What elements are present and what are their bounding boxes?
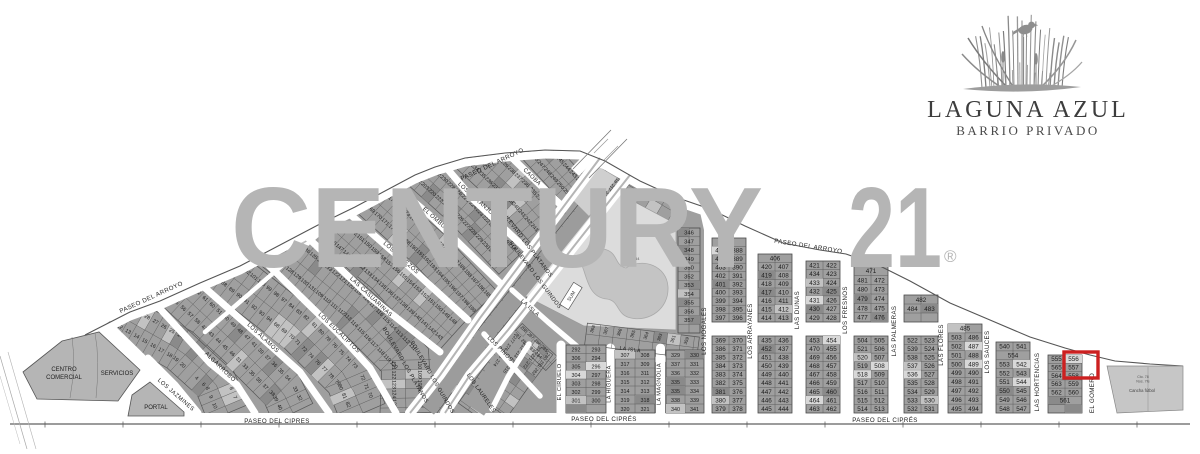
svg-text:385: 385: [715, 355, 726, 362]
svg-text:436: 436: [778, 337, 789, 344]
svg-text:331: 331: [690, 362, 699, 368]
svg-text:LA HIGUERA: LA HIGUERA: [607, 365, 613, 403]
svg-text:522: 522: [907, 337, 918, 344]
svg-text:320: 320: [621, 407, 630, 413]
svg-text:514: 514: [857, 406, 868, 413]
svg-text:300: 300: [592, 398, 601, 404]
svg-text:513: 513: [874, 406, 885, 413]
svg-text:378: 378: [732, 406, 743, 413]
svg-text:299: 299: [592, 390, 601, 396]
svg-text:527: 527: [924, 372, 935, 379]
svg-text:548: 548: [999, 406, 1010, 413]
svg-text:CENTRO: CENTRO: [51, 367, 77, 373]
svg-text:555: 555: [1051, 356, 1062, 363]
svg-text:321: 321: [641, 407, 650, 413]
svg-text:LOS NOGALES: LOS NOGALES: [701, 307, 708, 355]
svg-text:441: 441: [778, 380, 789, 387]
svg-text:376: 376: [732, 389, 743, 396]
svg-text:491: 491: [968, 379, 979, 386]
svg-text:317: 317: [621, 362, 630, 368]
svg-text:465: 465: [809, 389, 820, 396]
svg-text:464: 464: [809, 397, 820, 404]
svg-text:535: 535: [907, 380, 918, 387]
svg-text:449: 449: [761, 372, 772, 379]
svg-text:435: 435: [761, 337, 772, 344]
svg-text:394: 394: [732, 298, 743, 305]
svg-text:369: 369: [715, 337, 726, 344]
svg-text:338: 338: [671, 398, 680, 404]
svg-text:PASEO DEL CIPRÉS: PASEO DEL CIPRÉS: [852, 417, 918, 424]
svg-text:424: 424: [826, 280, 837, 287]
svg-text:21: 21: [848, 165, 942, 292]
svg-text:318: 318: [641, 398, 650, 404]
svg-text:381: 381: [715, 389, 726, 396]
svg-text:538: 538: [907, 355, 918, 362]
svg-text:468: 468: [809, 363, 820, 370]
svg-text:524: 524: [924, 346, 935, 353]
svg-text:508: 508: [874, 363, 885, 370]
svg-text:543: 543: [1016, 370, 1027, 377]
svg-text:COMERCIAL: COMERCIAL: [46, 375, 82, 381]
svg-text:416: 416: [761, 298, 772, 305]
svg-text:312: 312: [641, 380, 650, 386]
svg-text:549: 549: [999, 397, 1010, 404]
svg-text:415: 415: [761, 306, 772, 313]
svg-text:406: 406: [770, 255, 781, 262]
svg-text:409: 409: [778, 281, 789, 288]
svg-text:510: 510: [874, 380, 885, 387]
svg-text:518: 518: [857, 372, 868, 379]
svg-text:454: 454: [826, 337, 837, 344]
svg-text:528: 528: [924, 380, 935, 387]
svg-text:371: 371: [732, 346, 743, 353]
svg-text:330: 330: [690, 353, 699, 359]
svg-text:430: 430: [809, 306, 820, 313]
svg-text:386: 386: [715, 346, 726, 353]
svg-text:355: 355: [684, 301, 694, 307]
svg-text:396: 396: [732, 315, 743, 322]
svg-text:434: 434: [809, 271, 820, 278]
svg-text:446: 446: [761, 397, 772, 404]
svg-text:534: 534: [907, 389, 918, 396]
svg-text:356: 356: [684, 309, 694, 315]
svg-text:307: 307: [621, 353, 630, 359]
svg-text:445: 445: [761, 406, 772, 413]
svg-text:379: 379: [715, 406, 726, 413]
svg-text:536: 536: [907, 372, 918, 379]
svg-text:447: 447: [761, 389, 772, 396]
svg-text:456: 456: [826, 355, 837, 362]
svg-text:493: 493: [968, 397, 979, 404]
svg-text:399: 399: [715, 298, 726, 305]
svg-text:560: 560: [1068, 389, 1079, 396]
svg-text:533: 533: [907, 397, 918, 404]
svg-text:LAS PALMERAS: LAS PALMERAS: [891, 306, 898, 357]
svg-text:487: 487: [968, 344, 979, 351]
svg-text:421: 421: [809, 263, 820, 270]
svg-text:427: 427: [826, 306, 837, 313]
svg-text:LAS DUNAS: LAS DUNAS: [794, 291, 801, 329]
svg-text:488: 488: [968, 352, 979, 359]
svg-text:489: 489: [968, 361, 979, 368]
svg-text:296: 296: [592, 364, 601, 370]
svg-text:515: 515: [857, 397, 868, 404]
svg-text:486: 486: [968, 335, 979, 342]
svg-text:552: 552: [999, 370, 1010, 377]
svg-text:395: 395: [732, 307, 743, 314]
svg-text:492: 492: [968, 388, 979, 395]
svg-text:512: 512: [874, 397, 885, 404]
svg-text:306: 306: [572, 356, 581, 362]
svg-text:556: 556: [1068, 356, 1079, 363]
svg-text:531: 531: [924, 406, 935, 413]
svg-text:440: 440: [778, 372, 789, 379]
svg-text:452: 452: [761, 346, 772, 353]
svg-text:BARRIO PRIVADO: BARRIO PRIVADO: [956, 123, 1099, 138]
svg-text:329: 329: [671, 353, 680, 359]
svg-text:443: 443: [778, 397, 789, 404]
svg-text:544: 544: [1016, 379, 1027, 386]
svg-text:297: 297: [592, 373, 601, 379]
svg-text:469: 469: [809, 355, 820, 362]
svg-text:414: 414: [761, 315, 772, 322]
svg-text:422: 422: [826, 263, 837, 270]
svg-text:559: 559: [1068, 381, 1079, 388]
svg-text:503: 503: [951, 335, 962, 342]
svg-text:SERVICIOS: SERVICIOS: [101, 371, 134, 377]
svg-text:437: 437: [778, 346, 789, 353]
svg-text:412: 412: [778, 306, 789, 313]
svg-text:377: 377: [732, 397, 743, 404]
svg-text:460: 460: [826, 389, 837, 396]
svg-text:314: 314: [621, 389, 630, 395]
svg-text:407: 407: [778, 264, 789, 271]
svg-text:499: 499: [951, 370, 962, 377]
svg-text:397: 397: [715, 315, 726, 322]
svg-text:507: 507: [874, 355, 885, 362]
svg-text:425: 425: [826, 289, 837, 296]
svg-text:383: 383: [715, 372, 726, 379]
svg-text:490: 490: [968, 370, 979, 377]
svg-text:LAS FLORES: LAS FLORES: [938, 324, 945, 366]
svg-text:302: 302: [572, 390, 581, 396]
svg-text:554: 554: [1008, 353, 1019, 360]
svg-text:339: 339: [690, 398, 699, 404]
svg-text:475: 475: [874, 305, 885, 312]
svg-text:LOS FRESNOS: LOS FRESNOS: [842, 286, 849, 334]
svg-text:LA MAGNOLIA: LA MAGNOLIA: [657, 363, 663, 405]
svg-text:459: 459: [826, 380, 837, 387]
svg-text:476: 476: [874, 315, 885, 322]
svg-text:Nos. 7fe: Nos. 7fe: [1136, 380, 1149, 384]
svg-text:474: 474: [874, 296, 885, 303]
svg-text:511: 511: [874, 389, 885, 396]
svg-text:494: 494: [968, 406, 979, 413]
svg-text:517: 517: [857, 380, 868, 387]
svg-text:523: 523: [924, 337, 935, 344]
svg-text:370: 370: [732, 337, 743, 344]
svg-text:431: 431: [809, 297, 820, 304]
svg-text:439: 439: [778, 363, 789, 370]
svg-text:410: 410: [778, 289, 789, 296]
svg-text:426: 426: [826, 297, 837, 304]
svg-text:372: 372: [732, 355, 743, 362]
svg-text:354: 354: [684, 292, 694, 298]
svg-text:557: 557: [1068, 365, 1079, 372]
svg-text:CENTURY: CENTURY: [231, 165, 763, 292]
svg-text:466: 466: [809, 380, 820, 387]
svg-text:478: 478: [857, 305, 868, 312]
svg-text:453: 453: [809, 337, 820, 344]
svg-text:305: 305: [572, 364, 581, 370]
svg-text:501: 501: [951, 352, 962, 359]
svg-text:333: 333: [690, 380, 699, 386]
svg-text:482: 482: [916, 297, 927, 304]
svg-text:432: 432: [809, 289, 820, 296]
svg-text:357: 357: [684, 318, 694, 324]
svg-text:450: 450: [761, 363, 772, 370]
svg-text:121: 121: [390, 361, 396, 370]
svg-text:336: 336: [671, 371, 680, 377]
svg-text:546: 546: [1016, 397, 1027, 404]
svg-text:122: 122: [390, 371, 396, 380]
svg-text:550: 550: [999, 388, 1010, 395]
svg-text:498: 498: [951, 379, 962, 386]
svg-text:398: 398: [715, 307, 726, 314]
svg-text:LAGUNA AZUL: LAGUNA AZUL: [927, 97, 1129, 123]
svg-text:311: 311: [641, 371, 650, 377]
svg-text:519: 519: [857, 363, 868, 370]
svg-text:483: 483: [924, 306, 935, 313]
svg-text:457: 457: [826, 363, 837, 370]
svg-text:341: 341: [690, 407, 699, 413]
svg-text:526: 526: [924, 363, 935, 370]
svg-text:540: 540: [999, 344, 1010, 351]
svg-text:337: 337: [671, 362, 680, 368]
svg-text:551: 551: [999, 379, 1010, 386]
svg-text:470: 470: [809, 346, 820, 353]
svg-text:520: 520: [857, 355, 868, 362]
svg-text:448: 448: [761, 380, 772, 387]
svg-text:313: 313: [641, 389, 650, 395]
svg-text:537: 537: [907, 363, 918, 370]
svg-text:438: 438: [778, 355, 789, 362]
svg-text:564: 564: [1051, 373, 1062, 380]
svg-text:123: 123: [390, 380, 396, 389]
svg-text:545: 545: [1016, 388, 1027, 395]
svg-text:539: 539: [907, 346, 918, 353]
svg-text:LOS SAUCES: LOS SAUCES: [984, 331, 991, 374]
svg-text:455: 455: [826, 346, 837, 353]
svg-text:408: 408: [778, 272, 789, 279]
svg-text:467: 467: [809, 372, 820, 379]
svg-text:332: 332: [690, 371, 699, 377]
svg-text:562: 562: [1051, 389, 1062, 396]
svg-text:462: 462: [826, 406, 837, 413]
svg-text:530: 530: [924, 397, 935, 404]
svg-text:429: 429: [809, 315, 820, 322]
svg-text:500: 500: [951, 361, 962, 368]
svg-text:502: 502: [951, 344, 962, 351]
svg-text:335: 335: [671, 380, 680, 386]
svg-text:484: 484: [907, 306, 918, 313]
svg-text:529: 529: [924, 389, 935, 396]
svg-text:565: 565: [1051, 365, 1062, 372]
svg-text:509: 509: [874, 372, 885, 379]
svg-text:384: 384: [715, 363, 726, 370]
svg-text:EL CIRUELO: EL CIRUELO: [557, 363, 563, 400]
svg-text:382: 382: [715, 380, 726, 387]
svg-text:541: 541: [1016, 344, 1027, 351]
svg-text:334: 334: [690, 389, 699, 395]
svg-text:442: 442: [778, 389, 789, 396]
svg-text:340: 340: [671, 407, 680, 413]
svg-text:316: 316: [621, 371, 630, 377]
svg-text:109: 109: [416, 370, 422, 379]
svg-text:423: 423: [826, 271, 837, 278]
svg-text:479: 479: [857, 296, 868, 303]
svg-text:495: 495: [951, 406, 962, 413]
svg-text:Cto. 78: Cto. 78: [1137, 375, 1149, 379]
svg-text:525: 525: [924, 355, 935, 362]
svg-text:542: 542: [1016, 361, 1027, 368]
svg-text:PORTAL: PORTAL: [144, 405, 168, 411]
svg-text:298: 298: [592, 381, 601, 387]
svg-text:485: 485: [960, 326, 971, 333]
svg-text:373: 373: [732, 363, 743, 370]
svg-text:451: 451: [761, 355, 772, 362]
svg-text:304: 304: [572, 373, 581, 379]
svg-text:413: 413: [778, 315, 789, 322]
svg-text:308: 308: [641, 353, 650, 359]
svg-text:380: 380: [715, 397, 726, 404]
svg-text:496: 496: [951, 397, 962, 404]
svg-text:315: 315: [621, 380, 630, 386]
svg-text:301: 301: [572, 398, 581, 404]
svg-text:532: 532: [907, 406, 918, 413]
svg-text:506: 506: [874, 346, 885, 353]
svg-text:458: 458: [826, 372, 837, 379]
svg-text:375: 375: [732, 380, 743, 387]
svg-text:Cancha fútbol: Cancha fútbol: [1129, 388, 1155, 393]
svg-text:LOS ARRAYANES: LOS ARRAYANES: [747, 303, 754, 358]
svg-text:547: 547: [1016, 406, 1027, 413]
svg-text:521: 521: [857, 346, 868, 353]
svg-text:477: 477: [857, 315, 868, 322]
svg-text:553: 553: [999, 361, 1010, 368]
svg-text:335: 335: [671, 389, 680, 395]
svg-text:®: ®: [944, 247, 957, 266]
svg-text:561: 561: [1060, 398, 1071, 405]
svg-text:374: 374: [732, 372, 743, 379]
svg-text:292: 292: [572, 347, 581, 353]
svg-text:303: 303: [572, 381, 581, 387]
svg-text:124: 124: [391, 390, 397, 399]
svg-text:505: 505: [874, 337, 885, 344]
svg-text:504: 504: [857, 337, 868, 344]
svg-text:461: 461: [826, 397, 837, 404]
svg-text:LAS HORTENCIAS: LAS HORTENCIAS: [1034, 353, 1041, 412]
svg-text:294: 294: [592, 356, 601, 362]
svg-text:433: 433: [809, 280, 820, 287]
svg-text:428: 428: [826, 315, 837, 322]
svg-text:463: 463: [809, 406, 820, 413]
svg-text:411: 411: [778, 298, 789, 305]
svg-text:497: 497: [951, 388, 962, 395]
svg-text:516: 516: [857, 389, 868, 396]
svg-text:563: 563: [1051, 381, 1062, 388]
svg-text:293: 293: [592, 347, 601, 353]
svg-text:PASEO DEL CIPRÉS: PASEO DEL CIPRÉS: [571, 416, 637, 423]
svg-text:319: 319: [621, 398, 630, 404]
svg-text:444: 444: [778, 406, 789, 413]
svg-text:309: 309: [641, 362, 650, 368]
